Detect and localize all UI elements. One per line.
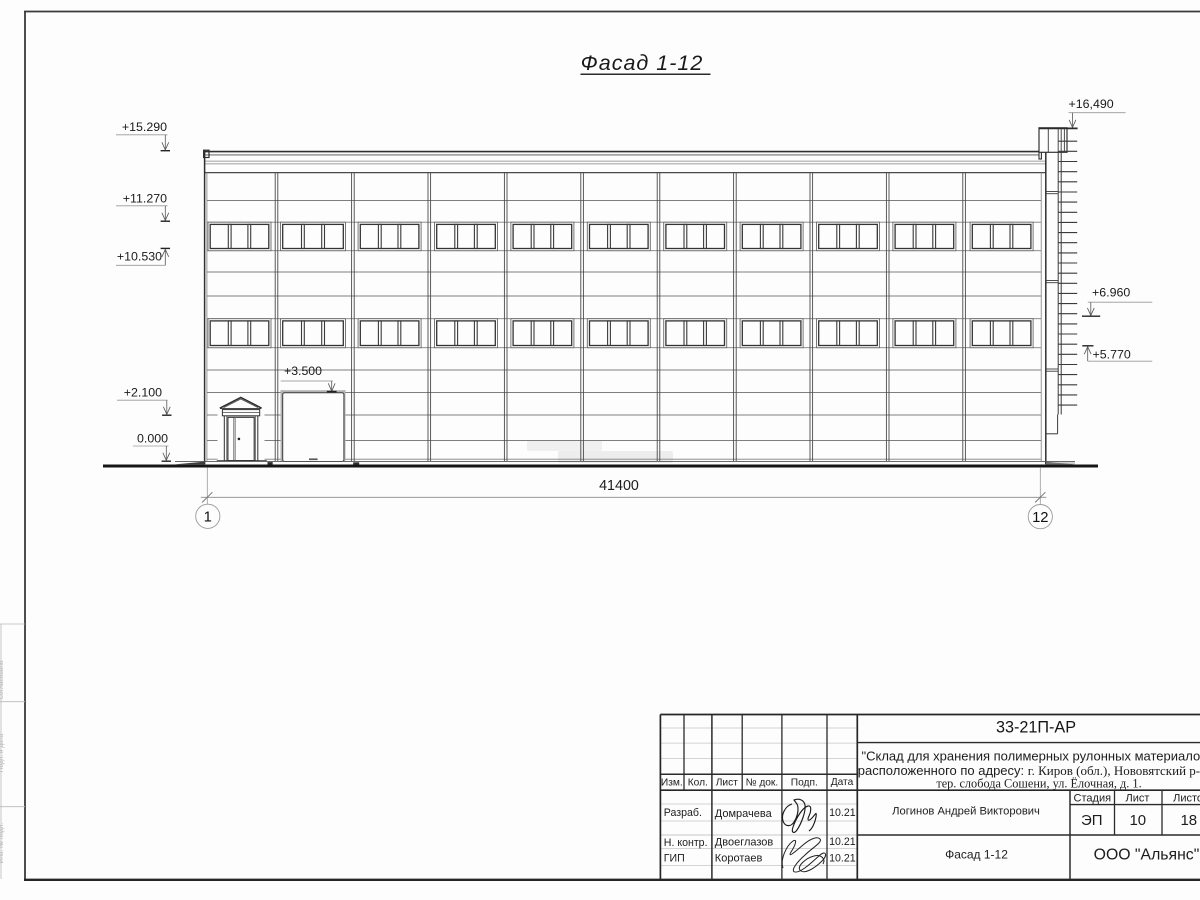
svg-text:10.21: 10.21 xyxy=(829,807,856,819)
svg-text:ООО "Альянс": ООО "Альянс" xyxy=(1094,846,1200,863)
svg-text:Двоеглазов: Двоеглазов xyxy=(715,837,774,849)
svg-text:1: 1 xyxy=(204,510,212,526)
svg-text:+3.500: +3.500 xyxy=(284,364,322,378)
svg-text:Домрачева: Домрачева xyxy=(715,808,773,820)
svg-text:33-21П-АР: 33-21П-АР xyxy=(996,719,1076,737)
svg-text:Стадия: Стадия xyxy=(1074,792,1112,804)
svg-text:18: 18 xyxy=(1180,812,1197,829)
svg-text:Дата: Дата xyxy=(831,777,854,788)
svg-text:+11.270: +11.270 xyxy=(123,191,167,205)
svg-text:+16,490: +16,490 xyxy=(1069,97,1114,111)
svg-text:0.000: 0.000 xyxy=(137,432,168,446)
svg-text:Кол.: Кол. xyxy=(688,778,708,789)
svg-text:10.21: 10.21 xyxy=(829,836,856,848)
svg-text:Фасад 1-12: Фасад 1-12 xyxy=(581,51,704,75)
svg-text:Логинов Андрей Викторович: Логинов Андрей Викторович xyxy=(892,806,1040,818)
svg-text:№ док.: № док. xyxy=(746,778,779,789)
svg-text:Листов: Листов xyxy=(1173,792,1200,804)
svg-text:тер. слобода Сошени, ул. Ёлочн: тер. слобода Сошени, ул. Ёлочная, д. 1. xyxy=(936,777,1141,791)
svg-text:Подп. и дата: Подп. и дата xyxy=(0,733,5,772)
svg-text:Изм.: Изм. xyxy=(661,778,683,789)
svg-text:+15.290: +15.290 xyxy=(122,120,167,134)
svg-text:Н. контр.: Н. контр. xyxy=(664,837,708,849)
svg-text:+2.100: +2.100 xyxy=(124,386,162,400)
svg-text:Инв. № подл.: Инв. № подл. xyxy=(0,823,5,864)
svg-text:Коротаев: Коротаев xyxy=(715,853,763,865)
svg-text:10: 10 xyxy=(1129,812,1146,829)
svg-text:Разраб.: Разраб. xyxy=(664,807,702,819)
svg-text:41400: 41400 xyxy=(599,478,639,494)
svg-text:+6.960: +6.960 xyxy=(1092,286,1130,300)
svg-text:10.21: 10.21 xyxy=(829,852,856,864)
svg-text:Лист: Лист xyxy=(1126,792,1150,804)
svg-text:+5.770: +5.770 xyxy=(1093,347,1131,361)
svg-text:"Склад для хранения полимерных: "Склад для хранения полимерных рулонных … xyxy=(862,748,1200,763)
svg-text:+10.530: +10.530 xyxy=(117,250,162,264)
svg-text:Фасад 1-12: Фасад 1-12 xyxy=(945,847,1008,861)
svg-text:Подп.: Подп. xyxy=(791,778,818,789)
svg-text:12: 12 xyxy=(1032,510,1048,526)
svg-text:ЭП: ЭП xyxy=(1081,812,1103,829)
svg-text:ГИП: ГИП xyxy=(664,853,685,865)
svg-text:Согласовано: Согласовано xyxy=(0,660,5,699)
svg-text:Лист: Лист xyxy=(716,778,738,789)
